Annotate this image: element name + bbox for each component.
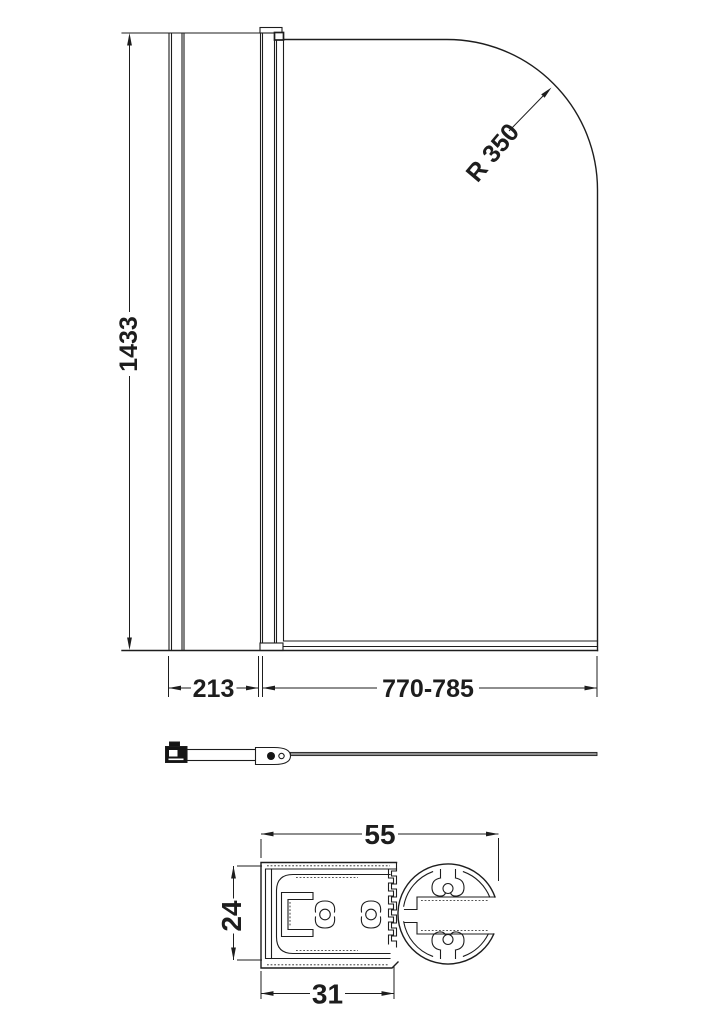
chamber-knurl (296, 878, 358, 951)
hinge-top-block (275, 33, 284, 41)
section-view: 55 24 31 (216, 819, 499, 1010)
boss-brace-top (361, 901, 380, 912)
arrowhead-up (127, 33, 132, 46)
arrowhead-down (127, 638, 132, 651)
screw-hole (443, 935, 453, 945)
dim-label-section-base: 31 (312, 979, 343, 1010)
screw-hole (443, 884, 453, 894)
pivot-screw (279, 753, 284, 758)
profile-section (261, 863, 398, 969)
post-inner-ring (404, 922, 433, 957)
technical-drawing-canvas: 1433 213 770-785 R 350 (0, 0, 724, 1024)
headrail-bar (187, 750, 257, 761)
boss-stems (441, 950, 456, 959)
screen-outline (284, 40, 598, 651)
post-channel (417, 897, 495, 934)
radius-callout: R 350 (461, 88, 552, 188)
post-screw-boss-bottom (432, 932, 464, 959)
arrowhead-left (261, 991, 274, 996)
screw-hole (366, 909, 377, 920)
arrowhead-right (585, 686, 598, 691)
bottom-rail (263, 641, 598, 647)
technical-drawing-page: 1433 213 770-785 R 350 (0, 0, 724, 1024)
boss-brace-bottom (361, 917, 380, 928)
arrowhead-down (231, 948, 236, 961)
channel-knurl (421, 901, 488, 931)
post-inner-ring (463, 934, 488, 956)
post-channel-stub (405, 897, 418, 934)
dim-label-screen-width: 770-785 (382, 675, 474, 703)
glazing-clamp (282, 893, 314, 937)
post-screw-boss-top (432, 870, 464, 897)
arrowhead-right (246, 686, 259, 691)
dimension-width-bottom: 213 770-785 (169, 656, 598, 703)
dimension-24: 24 (216, 866, 262, 960)
screw-boss (361, 901, 380, 928)
hinge-bottom-cap (260, 643, 283, 651)
screw-hole (320, 909, 331, 920)
wall-profile (169, 33, 184, 651)
post-outer-ring (398, 864, 495, 964)
glass-panel-edge (291, 752, 598, 755)
arrowhead-left (263, 686, 276, 691)
screw-boss (315, 901, 334, 928)
boss-brace-bottom (315, 917, 334, 928)
leader-line (509, 96, 543, 131)
arrowhead-left (169, 686, 182, 691)
hinge-profile (261, 33, 277, 643)
dimension-31: 31 (261, 966, 394, 1010)
arrowhead-up (231, 866, 236, 879)
front-view (122, 28, 598, 651)
dim-label-radius: R 350 (461, 118, 525, 187)
dimension-height-1433: 1433 (115, 33, 143, 650)
pivot-pin (267, 752, 275, 760)
dim-label-section-depth: 24 (216, 900, 247, 932)
arrowhead-right (382, 991, 395, 996)
dim-label-section-width: 55 (364, 819, 395, 850)
wall-bracket-slot (169, 759, 184, 761)
round-post-section (398, 864, 495, 964)
snap-teeth-left (389, 870, 394, 944)
post-inner-ring (404, 872, 433, 907)
post-inner-ring (463, 872, 489, 897)
boss-stems (441, 870, 456, 879)
plan-view (166, 742, 598, 765)
inner-chamber (277, 875, 391, 954)
arrowhead-left (261, 832, 274, 837)
dim-label-panel-width: 213 (193, 675, 235, 703)
dim-label-height: 1433 (115, 316, 143, 372)
arrowhead-right (486, 832, 499, 837)
boss-brace-top (315, 901, 334, 912)
wall-bracket-notch (169, 750, 178, 757)
